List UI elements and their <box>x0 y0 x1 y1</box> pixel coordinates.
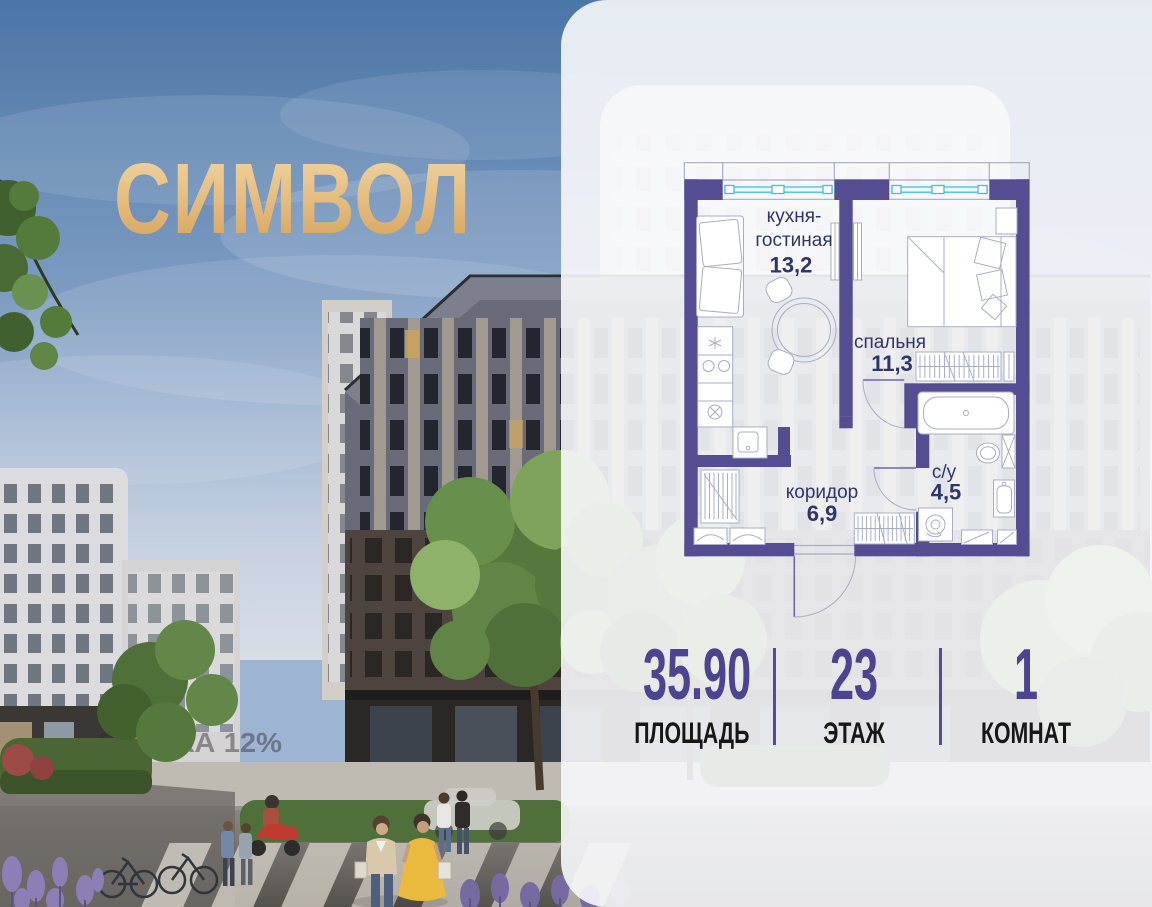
listing-promo-card: СКИДКА 12% <box>0 0 1152 907</box>
stat-rooms: 1 КОМНАТ <box>946 639 1106 749</box>
stat-area-value: 35.90 <box>643 639 739 711</box>
stat-floor-value: 23 <box>806 639 902 711</box>
stats-divider <box>939 648 942 745</box>
stat-area: 35.90 ПЛОЩАДЬ <box>611 639 771 749</box>
stat-rooms-value: 1 <box>978 639 1074 711</box>
logo-simvol: СИМВОЛ <box>114 143 472 255</box>
stats-row: 35.90 ПЛОЩАДЬ 23 ЭТАЖ 1 КОМНАТ <box>561 0 1152 907</box>
stat-floor-label: ЭТАЖ <box>797 719 911 749</box>
stat-floor: 23 ЭТАЖ <box>774 639 934 749</box>
stat-area-label: ПЛОЩАДЬ <box>634 719 748 749</box>
info-panel: кухня- гостиная 13,2 спальня 11,3 коридо… <box>561 0 1152 907</box>
stat-rooms-label: КОМНАТ <box>969 719 1083 749</box>
